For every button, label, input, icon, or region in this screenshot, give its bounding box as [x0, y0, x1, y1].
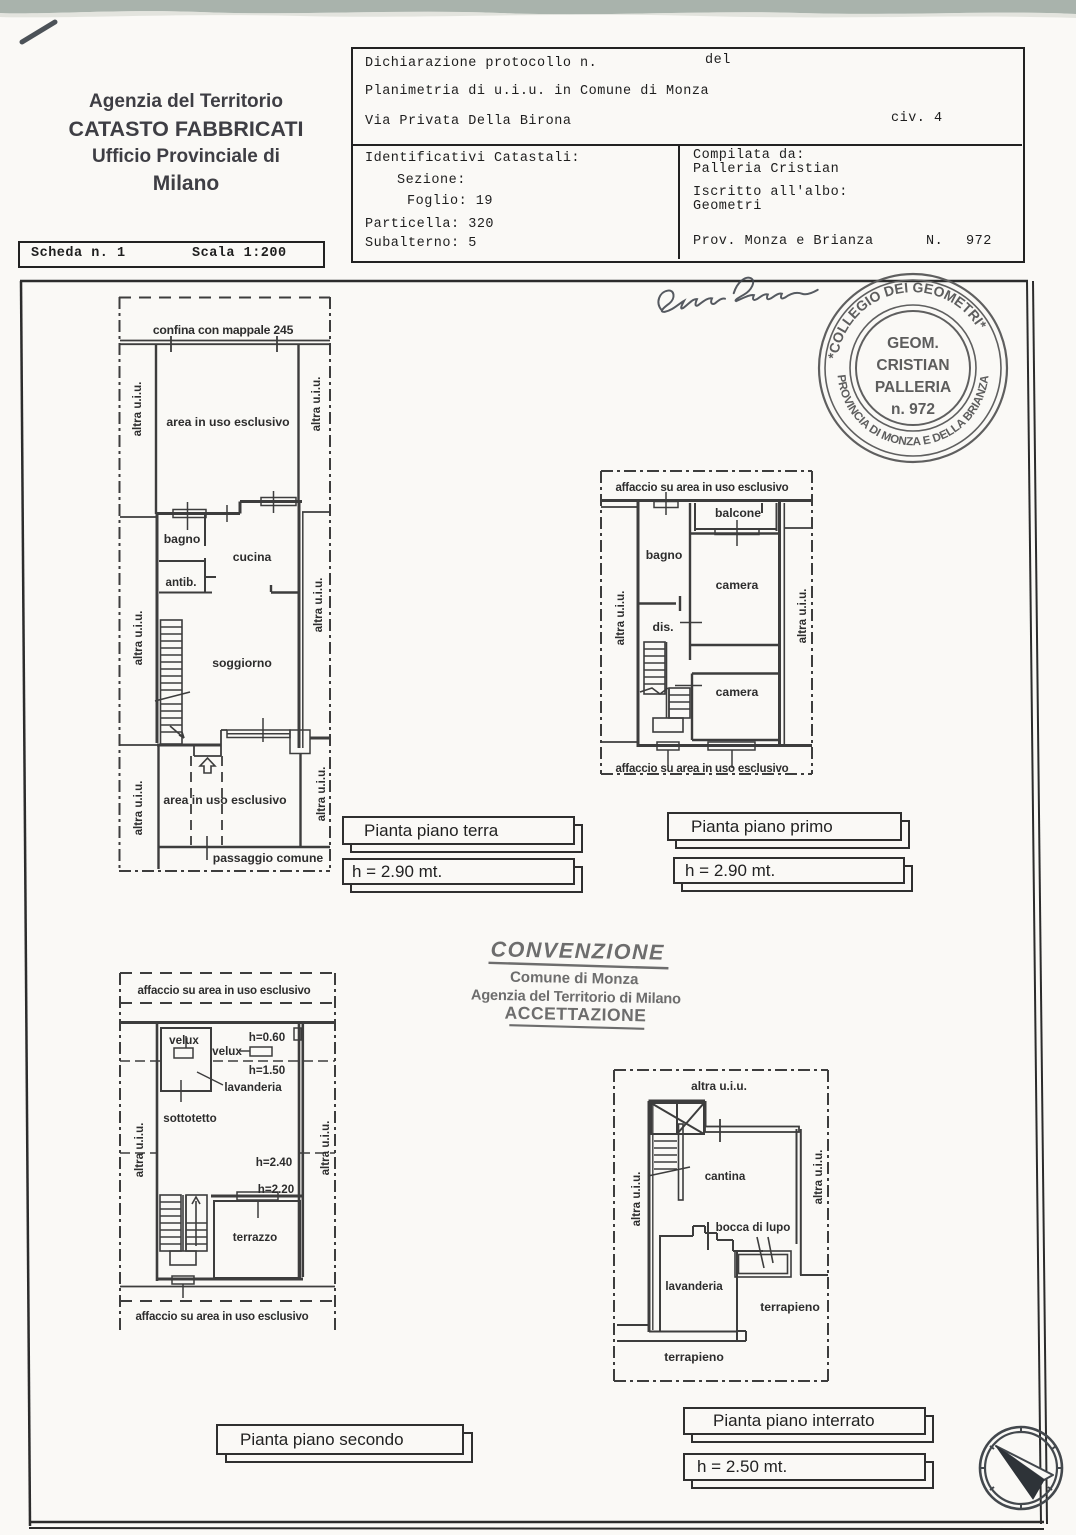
- svg-text:CONVENZIONE: CONVENZIONE: [490, 937, 665, 964]
- svg-text:dis.: dis.: [653, 620, 674, 634]
- svg-text:altra u.i.u.: altra u.i.u.: [133, 1123, 146, 1178]
- svg-text:altra u.i.u.: altra u.i.u.: [315, 767, 328, 822]
- svg-text:terrapieno: terrapieno: [664, 1350, 724, 1364]
- svg-text:ACCETTAZIONE: ACCETTAZIONE: [504, 1003, 646, 1026]
- svg-text:affaccio su area in uso esclus: affaccio su area in uso esclusivo: [615, 482, 788, 494]
- svg-text:affaccio su area in uso esclus: affaccio su area in uso esclusivo: [135, 1311, 308, 1323]
- svg-text:PALLERIA: PALLERIA: [875, 379, 951, 396]
- svg-text:CRISTIAN: CRISTIAN: [876, 357, 949, 374]
- svg-text:altra u.i.u.: altra u.i.u.: [319, 1121, 332, 1176]
- svg-text:terrapieno: terrapieno: [760, 1300, 820, 1314]
- svg-text:altra u.i.u.: altra u.i.u.: [630, 1172, 643, 1227]
- svg-text:area in uso esclusivo: area in uso esclusivo: [166, 415, 289, 429]
- svg-text:confina con mappale 245: confina con mappale 245: [153, 323, 294, 337]
- svg-text:terrazzo: terrazzo: [233, 1231, 277, 1244]
- svg-text:passaggio comune: passaggio comune: [213, 851, 324, 865]
- svg-text:area in uso esclusivo: area in uso esclusivo: [163, 793, 286, 807]
- svg-text:altra u.i.u.: altra u.i.u.: [132, 611, 145, 666]
- svg-text:h=1.50: h=1.50: [249, 1064, 285, 1077]
- svg-text:velux: velux: [212, 1045, 242, 1058]
- svg-text:altra u.i.u.: altra u.i.u.: [310, 377, 323, 432]
- svg-text:altra u.i.u.: altra u.i.u.: [614, 591, 627, 646]
- svg-text:h=0.60: h=0.60: [249, 1031, 285, 1044]
- svg-text:velux: velux: [169, 1034, 199, 1047]
- svg-text:GEOM.: GEOM.: [887, 335, 939, 352]
- svg-text:bagno: bagno: [646, 548, 683, 562]
- svg-text:lavanderia: lavanderia: [224, 1081, 282, 1094]
- svg-text:camera: camera: [716, 578, 759, 592]
- svg-text:affaccio su area in uso esclus: affaccio su area in uso esclusivo: [137, 985, 310, 997]
- svg-text:antib.: antib.: [166, 576, 197, 589]
- svg-text:h=2.20: h=2.20: [258, 1183, 294, 1196]
- svg-text:n. 972: n. 972: [891, 401, 935, 418]
- svg-text:soggiorno: soggiorno: [212, 656, 272, 670]
- svg-text:altra u.i.u.: altra u.i.u.: [312, 578, 325, 633]
- svg-text:Comune di Monza: Comune di Monza: [510, 969, 639, 988]
- svg-text:cucina: cucina: [233, 550, 272, 564]
- svg-text:sottotetto: sottotetto: [163, 1112, 216, 1125]
- svg-text:cantina: cantina: [705, 1170, 746, 1183]
- svg-text:lavanderia: lavanderia: [665, 1280, 723, 1293]
- svg-text:altra u.i.u.: altra u.i.u.: [131, 382, 144, 437]
- svg-text:altra u.i.u.: altra u.i.u.: [132, 781, 145, 836]
- svg-text:altra u.i.u.: altra u.i.u.: [796, 589, 809, 644]
- svg-text:camera: camera: [716, 685, 759, 699]
- svg-text:affaccio su area in uso esclus: affaccio su area in uso esclusivo: [615, 763, 788, 775]
- svg-text:altra u.i.u.: altra u.i.u.: [812, 1150, 825, 1205]
- svg-text:h=2.40: h=2.40: [256, 1156, 292, 1169]
- svg-text:balcone: balcone: [715, 506, 761, 520]
- svg-text:altra u.i.u.: altra u.i.u.: [691, 1079, 747, 1093]
- svg-text:bocca di lupo: bocca di lupo: [716, 1221, 791, 1234]
- svg-text:bagno: bagno: [164, 532, 201, 546]
